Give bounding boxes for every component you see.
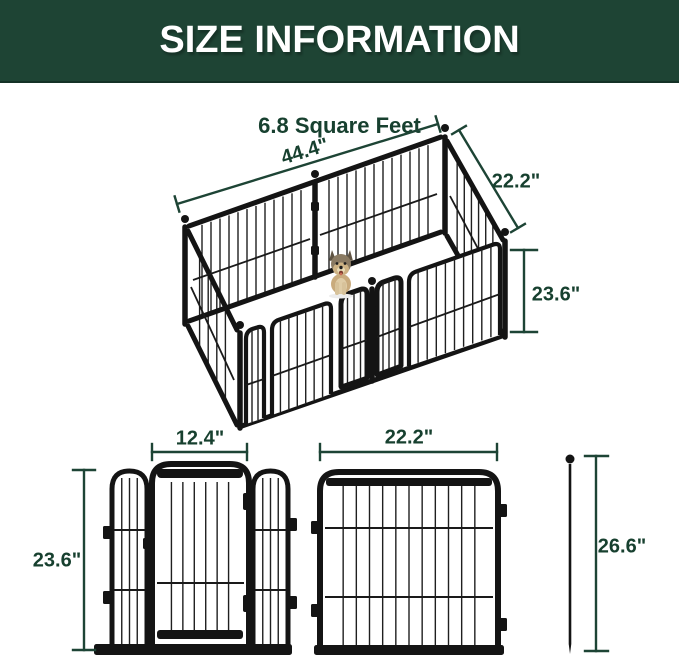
door-width-label: 12.4" — [176, 428, 224, 451]
size-information-infographic: SIZE INFORMATION 6.8 Square Feet — [0, 0, 679, 656]
door-panel-height-label: 23.6" — [33, 550, 81, 573]
playpen-3d-illustration — [181, 124, 509, 428]
wide-panel-illustration — [311, 472, 507, 655]
wide-panel-width-label: 22.2" — [385, 427, 433, 450]
door-panel-illustration — [94, 464, 297, 655]
diagram-canvas — [0, 0, 679, 656]
stake-height-label: 26.6" — [598, 536, 646, 559]
pen-height-label: 23.6" — [532, 284, 580, 307]
pen-width-label: 22.2" — [492, 171, 540, 194]
ground-stake-illustration — [566, 455, 575, 655]
